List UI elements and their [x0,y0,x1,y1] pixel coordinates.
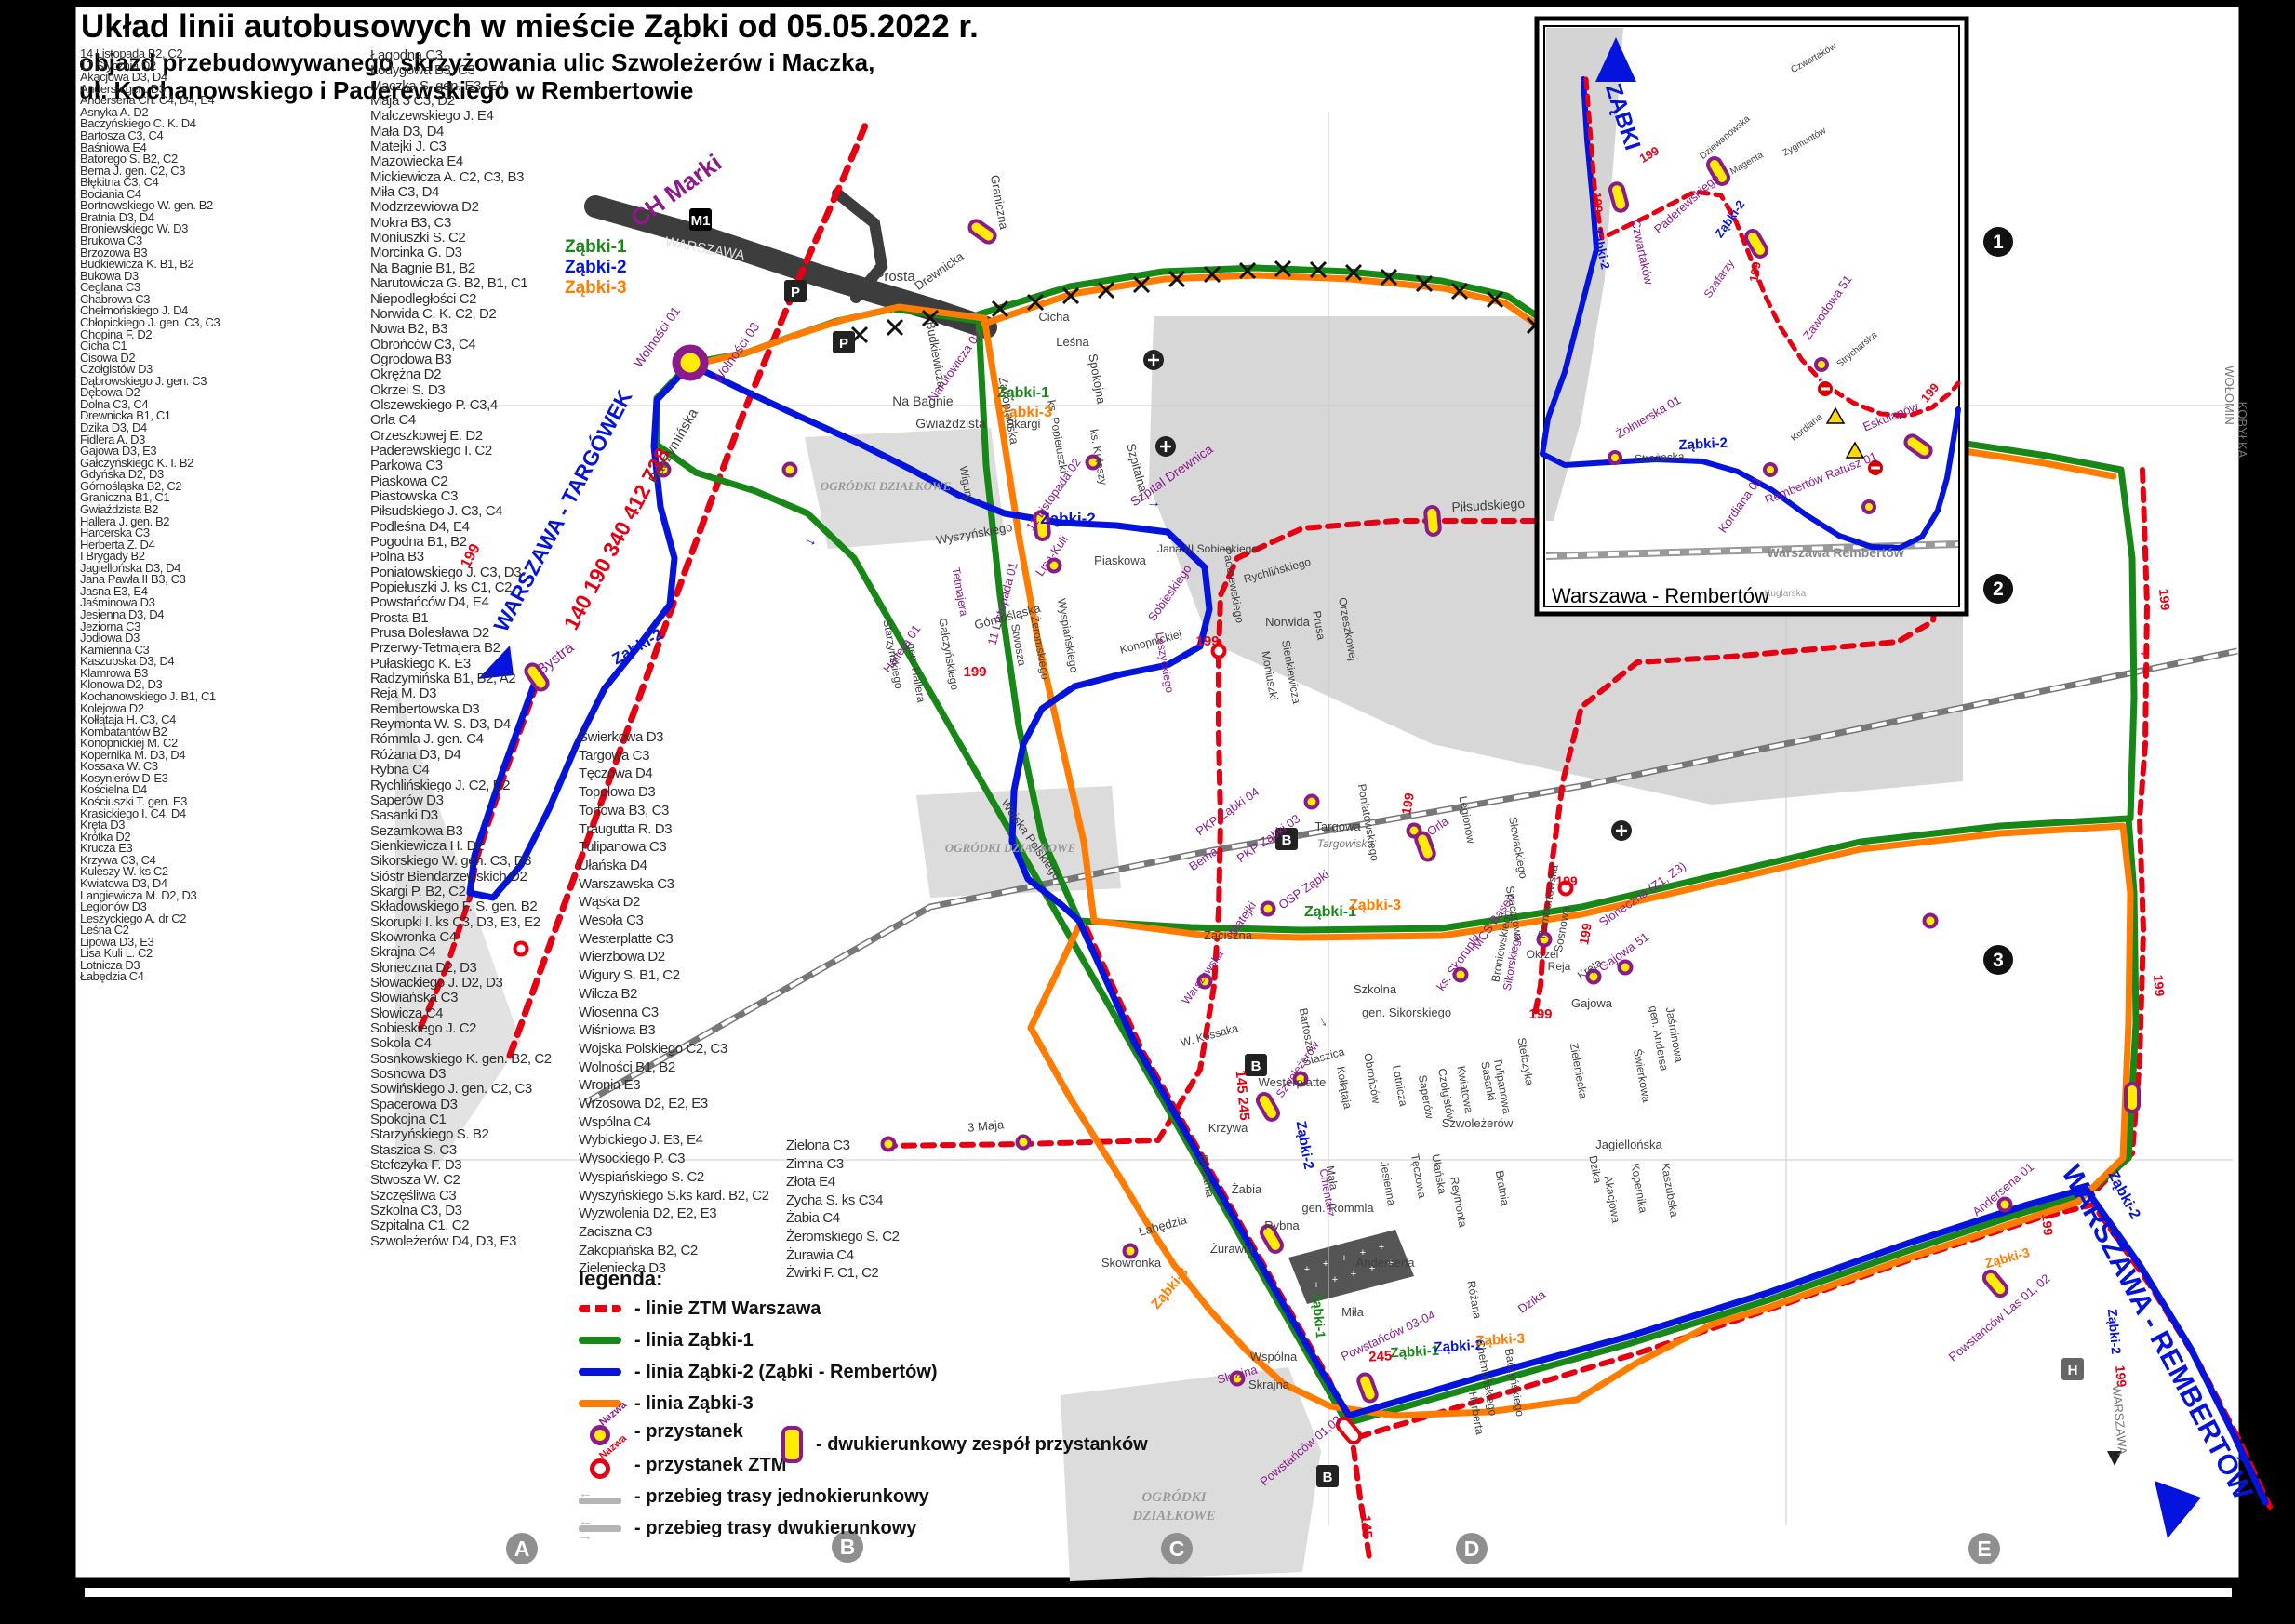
two-way-icon: ←→ [579,1517,621,1540]
cemetery-cross-icon: + [1332,1274,1338,1285]
map-label: 199 [1555,873,1578,888]
grid-number-label: 2 [1993,579,2004,600]
street-index-item: Maja 3 C3, D2 [370,94,552,109]
street-index-item: Mickiewicza A. C2, C3, B3 [370,170,552,185]
map-canvas: M1PPBBBH++++++++++CH MarkiWARSZAWAZąbki-… [0,0,2295,1624]
street-index-item: Powstańców D4, E4 [370,595,552,610]
map-label: Jana III Sobieskiego [1157,542,1258,555]
inset-stop [1816,359,1827,370]
street-index-item: Pogodna B1, B2 [370,535,552,550]
street-index-item: Sowińskiego J. gen. C2, C3 [370,1082,552,1097]
street-index-item: Traugutta R. D3 [579,820,769,839]
map-label: 199 [963,664,986,680]
street-index-item: Rembertowska D3 [370,702,552,717]
map-label: Rybna [1264,1218,1300,1232]
two-way-stop [2126,1084,2139,1112]
street-index-item: Moniuszki S. C2 [370,231,552,246]
map-label: Szwoleżerów [1442,1116,1514,1130]
stop [784,464,796,476]
street-index-item: Parkowa C3 [370,459,552,473]
map-label: Żurawia [1210,1242,1254,1256]
cemetery-cross-icon: + [1379,1242,1384,1253]
street-index-item: Okrzei S. D3 [370,383,552,398]
inset-stop [1863,501,1875,512]
inset-stop [1609,452,1621,463]
ztm-stop-icon: Nazwa [579,1453,621,1477]
street-index-item: Skowronka C4 [370,930,552,945]
street-index-item: Sienkiewicza H. D2 [370,839,552,854]
legend-item-stop: Nazwa- przystanek [579,1418,743,1445]
street-index-item: Składowskiego F. S. gen. B2 [370,899,552,914]
street-index-item: Westerplatte C3 [579,930,769,949]
street-index-item: Złota E4 [786,1173,900,1191]
page-edge [84,1587,2233,1598]
cemetery-cross-icon: + [1314,1280,1319,1291]
map-label: Cicha [1038,310,1070,324]
street-index-item: Ułańska D4 [579,857,769,875]
street-index-item: Piłsudskiego J. C3, C4 [370,504,552,519]
legend-item-solid: - linia Ząbki-2 (Ząbki - Rembertów) [579,1358,938,1386]
street-index-item: Łabędzia C4 [80,971,220,983]
street-index-item: Targowa C3 [579,747,769,765]
street-index-item: Niepodległości C2 [370,292,552,307]
map-label: Skowronka [1101,1256,1162,1270]
street-index-item: Spacerowa D3 [370,1098,552,1112]
map-label: 199 [2151,974,2168,997]
grid-number-label: 1 [1993,232,2004,253]
stop-dot [590,1425,610,1445]
street-index-item: Sióstr Biendarzewskich D2 [370,870,552,885]
street-index-item: Mazowiecka E4 [370,154,552,169]
map-label: → [1146,495,1161,511]
street-index-item: Skorupki I. ks C3, D3, E3, E2 [370,915,552,930]
street-index-item: Paderewskiego I. C2 [370,444,552,459]
route-line-icon [579,1368,621,1376]
street-index-item: Orla C4 [370,413,552,428]
street-index-item: Szwoleżerów D4, D3, E3 [370,1234,552,1249]
icon-letter: P [839,336,848,352]
street-index-item: Wyzwolenia D2, E2, E3 [579,1205,769,1223]
legend-item-label: - linie ZTM Warszawa [634,1298,821,1320]
legend-title: legenda: [579,1267,662,1291]
street-index-item: Zimna C3 [786,1155,900,1174]
street-index-item: Zycha S. ks C34 [786,1191,900,1210]
grid-number-label: 3 [1993,950,2004,971]
street-index-item: Wojska Polskiego C2, C3 [579,1040,769,1058]
street-index-item: Stefczyka F. D3 [370,1158,552,1173]
street-index-item: Warszawska C3 [579,875,769,894]
map-label: 199 [1528,1006,1552,1022]
map-label: 199 [1590,192,1606,213]
arrow-part: → [579,1532,621,1540]
street-index-item: Wilcza B2 [579,985,769,1004]
street-index-item: Sasanki D3 [370,808,552,823]
legend-item-label: - przystanek ZTM [634,1455,786,1476]
street-index-column-1: 14 Listopada B2, C217 Stycznia D2Akacjow… [80,48,220,983]
map-label: WOŁOMIN [2222,366,2236,425]
map-label: Ząbki-1 [1390,1343,1439,1362]
street-index-item: Starzyńskiego S. B2 [370,1127,552,1142]
map-label: gen. Sikorskiego [1362,1005,1451,1019]
map-label: Na Bagnie [892,393,954,408]
street-index-item: Wiosenna C3 [579,1004,769,1022]
street-index-item: Słoneczna D2, D3 [370,961,552,976]
map-label: Andersena [1356,1256,1416,1270]
grid-letter-label: C [1169,1537,1185,1561]
map-label: OGRÓDKI DZIAŁKOWE [945,841,1076,855]
map-label: Targowa [1314,819,1361,833]
page-title: Układ linii autobusowych w mieście Ząbki… [79,7,984,47]
street-index-item: Prosta B1 [370,611,552,626]
map-label: 199 [2156,588,2173,611]
stop [1306,796,1318,808]
street-index-item: Popiełuszki J. ks C1, C2 [370,580,552,595]
grid-letter-label: E [1977,1537,1991,1561]
street-index-item: Wigury S. B1, C2 [579,966,769,985]
street-index-item: Sosnowa D3 [370,1067,552,1082]
street-index-item: Reymonta W. S. D3, D4 [370,717,552,732]
street-index-item: Szkolna C3, D3 [370,1204,552,1218]
street-index-item: Norwida C. K. C2, D2 [370,307,552,322]
street-index-item: Piaskowa C2 [370,474,552,489]
cemetery-cross-icon: + [1304,1264,1310,1275]
street-index-item: Matejki J. C3 [370,140,552,154]
map-label: Zaciszna [1204,928,1253,942]
street-index-item: Sosnkowskiego K. gen. B2, C2 [370,1052,552,1067]
street-index-item: Mokra B3, C3 [370,216,552,231]
map-label: Żabia [1232,1182,1262,1196]
cemetery-cross-icon: + [1351,1269,1356,1280]
street-index-item: Sezamkowa B3 [370,824,552,839]
street-index-item: Wrzosowa D2, E2, E3 [579,1095,769,1113]
street-index-item: Malczewskiego J. E4 [370,109,552,124]
no-entry-icon [1821,388,1830,391]
street-index-item: Szpitalna C1, C2 [370,1218,552,1233]
street-index-item: Maczka S. gen. E3, E4 [370,79,552,94]
street-index-item: Wspólna C4 [579,1113,769,1132]
street-index-item: Zielona C3 [786,1137,900,1155]
map-label: DZIAŁKOWE [1131,1509,1215,1524]
map-label: Okrzei [1527,948,1559,961]
street-index-item: Tulipanowa C3 [579,838,769,857]
icon-letter: B [1323,1470,1333,1485]
street-index-item: Wesoła C3 [579,912,769,930]
map-label: Skrajna [1248,1378,1290,1391]
map-label: Ząbki-2 [1678,435,1728,454]
street-index-item: Wyspiańskiego S. C2 [579,1168,769,1187]
street-index-item: Miła C3, D4 [370,185,552,200]
cemetery-cross-icon: + [1323,1258,1328,1270]
street-index-item: Morcinka G. D3 [370,246,552,260]
icon-letter: P [791,285,800,300]
street-index-item: Piastowska C3 [370,489,552,504]
map-label: Warszawa Rembertów [1767,545,1903,560]
street-index-item: Mała D3, D4 [370,125,552,140]
legend-item-stop-ztm: Nazwa- przystanek ZTM [579,1451,786,1479]
street-index-item: Ogrodowa B3 [370,353,552,367]
street-index-item: Rychlińskiego J. C2, D2 [370,779,552,793]
street-index-item: Wąska D2 [579,893,769,912]
street-index-item: Polna B3 [370,550,552,565]
street-index-item: Słowiańska C3 [370,991,552,1005]
icon-letter: M1 [691,213,711,229]
street-index-item: Sokola C4 [370,1036,552,1051]
map-label: Ząbki-1 [997,385,1049,401]
street-index-item: Zaciszna C3 [579,1223,769,1242]
cemetery-cross-icon: + [1341,1253,1347,1264]
street-index-item: Sobieskiego J. C2 [370,1021,552,1036]
inset-stop [1765,464,1776,475]
street-index-column-3: Świerkowa D3Targowa C3Tęczowa D4Topolowa… [579,728,769,1278]
street-index-item: Podleśna D4, E4 [370,520,552,535]
street-index-item: Okrężna D2 [370,367,552,382]
map-label: Szkolna [1354,982,1397,996]
street-index-item: Pułaskiego K. E3 [370,657,552,672]
map-label: Ząbki-1 [565,237,627,257]
map-label: OGRÓDKI DZIAŁKOWE [821,479,952,493]
street-index-item: Wybickiego J. E3, E4 [579,1131,769,1150]
map-label: Jagiellońska [1595,1138,1662,1151]
arrow-part: ← [579,1489,621,1498]
street-index-item: Łodygowa B3, C3 [370,63,552,78]
street-index-item: Rómmla J. gen. C4 [370,732,552,747]
street-index-item: Skrajna C4 [370,945,552,960]
map-label: OGRÓDKI [1141,1489,1207,1505]
street-index-item: Wolności B1, B2 [579,1058,769,1077]
map-label: 245 [1368,1348,1393,1364]
map-label: Krzywa [1208,1121,1248,1135]
grid-letter-label: D [1464,1537,1480,1561]
legend-item-solid: - linia Ząbki-1 [579,1326,754,1354]
legend-item-twoway: ←→- przebieg trasy dwukierunkowy [579,1514,916,1542]
street-index-item: Na Bagnie B1, B2 [370,261,552,276]
legend-item-label: - przystanek [634,1421,743,1443]
map-label: Leśna [1056,335,1089,349]
terminal-stop [676,349,704,377]
legend-item-label: - przebieg trasy jednokierunkowy [634,1486,929,1508]
legend-item-label: - linia Ząbki-3 [634,1393,754,1415]
street-index-item: Nowa B2, B3 [370,322,552,337]
stop-dot [590,1458,610,1479]
street-index-item: Obrońców C3, C4 [370,338,552,353]
map-label: Piaskowa [1094,553,1146,567]
stop [1018,1137,1030,1149]
arrow-part: ← [579,1517,621,1525]
street-index-item: Wierzbowa D2 [579,948,769,966]
two-way-stop [1425,506,1441,535]
street-index-item: Szczęśliwa C3 [370,1189,552,1204]
icon-letter: B [1251,1058,1261,1074]
map-label: Miła [1341,1305,1365,1319]
street-index-column-2: Łagodna C3Łodygowa B3, C3Maczka S. gen. … [370,48,552,1249]
icon-letter: H [2068,1363,2078,1378]
one-way-icon: ← [579,1489,621,1504]
street-index-item: Prusa Bolesława D2 [370,626,552,641]
street-index-item: Żurawia C4 [786,1246,900,1265]
map-label: KOBYŁKA [2235,402,2249,459]
legend-item-label: - dwukierunkowy zespół przystanków [816,1434,1148,1456]
street-index-item: Rybna C4 [370,763,552,778]
street-index-item: Żeromskiego S. C2 [786,1228,900,1246]
street-index-item: Modzrzewiowa D2 [370,200,552,215]
street-index-item: Orzeszkowej E. D2 [370,429,552,444]
map-label: Kuglarska [1765,589,1807,599]
map-label: Ząbki-3 [1349,898,1401,913]
street-index-item: Wysockiego P. C3 [579,1150,769,1168]
ztm-line-icon [579,1305,621,1312]
stop [1620,962,1632,974]
street-index-item: Słowicza C4 [370,1006,552,1021]
map-label: 199 [2039,1213,2056,1236]
street-index-item: Olszewskiego P. C3,4 [370,398,552,413]
street-index-item: Żabia C4 [786,1209,900,1228]
map-label: Strażacka [1635,450,1685,466]
map-label: Ząbki-3 [1000,405,1052,420]
street-index-item: Sikorskiego W. gen. C3, D3 [370,854,552,869]
page: { "header": { "line1": "Układ linii auto… [0,0,2295,1624]
two-way-stop-icon [781,1426,803,1463]
legend-item-label: - przebieg trasy dwukierunkowy [634,1518,916,1539]
map-label: 199 [1195,633,1219,649]
street-index-item: Tęczowa D4 [579,765,769,783]
street-index-item: Wiśniowa B3 [579,1021,769,1040]
arrow-part [579,1498,621,1504]
street-index-column-4: Zielona C3Zimna C3Złota E4Zycha S. ks C3… [786,1137,900,1283]
map-label: Norwida [1265,615,1310,629]
street-index-item: Łagodna C3 [370,48,552,63]
street-index-item: Poniatowskiego J. C3, D3 [370,566,552,580]
street-index-item: Wyszyńskiego S.ks kard. B2, C2 [579,1187,769,1205]
inset-title: Warszawa - Rembertów [1552,584,1769,607]
map-label: 145 [1357,1514,1375,1538]
street-index-item: Słowackiego J. D2, D3 [370,976,552,991]
map-label: Ząbki-2 [565,258,627,277]
street-index-item: Staszica S. C3 [370,1143,552,1158]
map-label: Gajowa [1571,996,1613,1010]
street-index-item: Narutowicza G. B2, B1, C1 [370,276,552,291]
street-index-item: Torfowa B3, C3 [579,802,769,820]
map-label: Gwiaździsta [915,416,986,431]
map-label: Ząbki-3 [565,278,627,298]
street-index-item: Saperów D3 [370,793,552,808]
map-label: Wspólna [1250,1350,1298,1364]
street-index-item: Spokojna C1 [370,1112,552,1127]
legend-item-label: - linia Ząbki-2 (Ząbki - Rembertów) [634,1362,938,1383]
grid-letter-label: A [514,1537,530,1561]
street-index-item: Żwirki F. C1, C2 [786,1264,900,1283]
street-index-item: Zakopiańska B2, C2 [579,1242,769,1260]
street-index-item: Wronia E3 [579,1076,769,1095]
map-label: Prosta [874,269,915,285]
stop [1925,915,1937,927]
street-index-item: Przerwy-Tetmajera B2 [370,641,552,656]
legend-item-dash: - linie ZTM Warszawa [579,1295,821,1323]
legend-item-pill: - dwukierunkowy zespół przystanków [770,1431,1148,1458]
street-index-item: Reja M. D3 [370,686,552,701]
no-entry-icon [1871,467,1880,470]
map-label: Reja [1548,960,1571,973]
stop [1262,903,1274,915]
street-index-item: Radzymińska B1, B2, A2 [370,672,552,686]
legend-item-oneway: ←- przebieg trasy jednokierunkowy [579,1483,929,1511]
street-index-item: Stwosza W. C2 [370,1173,552,1188]
map-label: → [2135,643,2152,659]
street-index-item: Różana D3, D4 [370,748,552,763]
legend-item-label: - linia Ząbki-1 [634,1330,754,1351]
street-index-item: Świerkowa D3 [579,728,769,747]
street-index-item: Skargi P. B2, C2 [370,885,552,899]
route-line-icon [579,1337,621,1344]
street-index-item: Topolowa D3 [579,783,769,802]
